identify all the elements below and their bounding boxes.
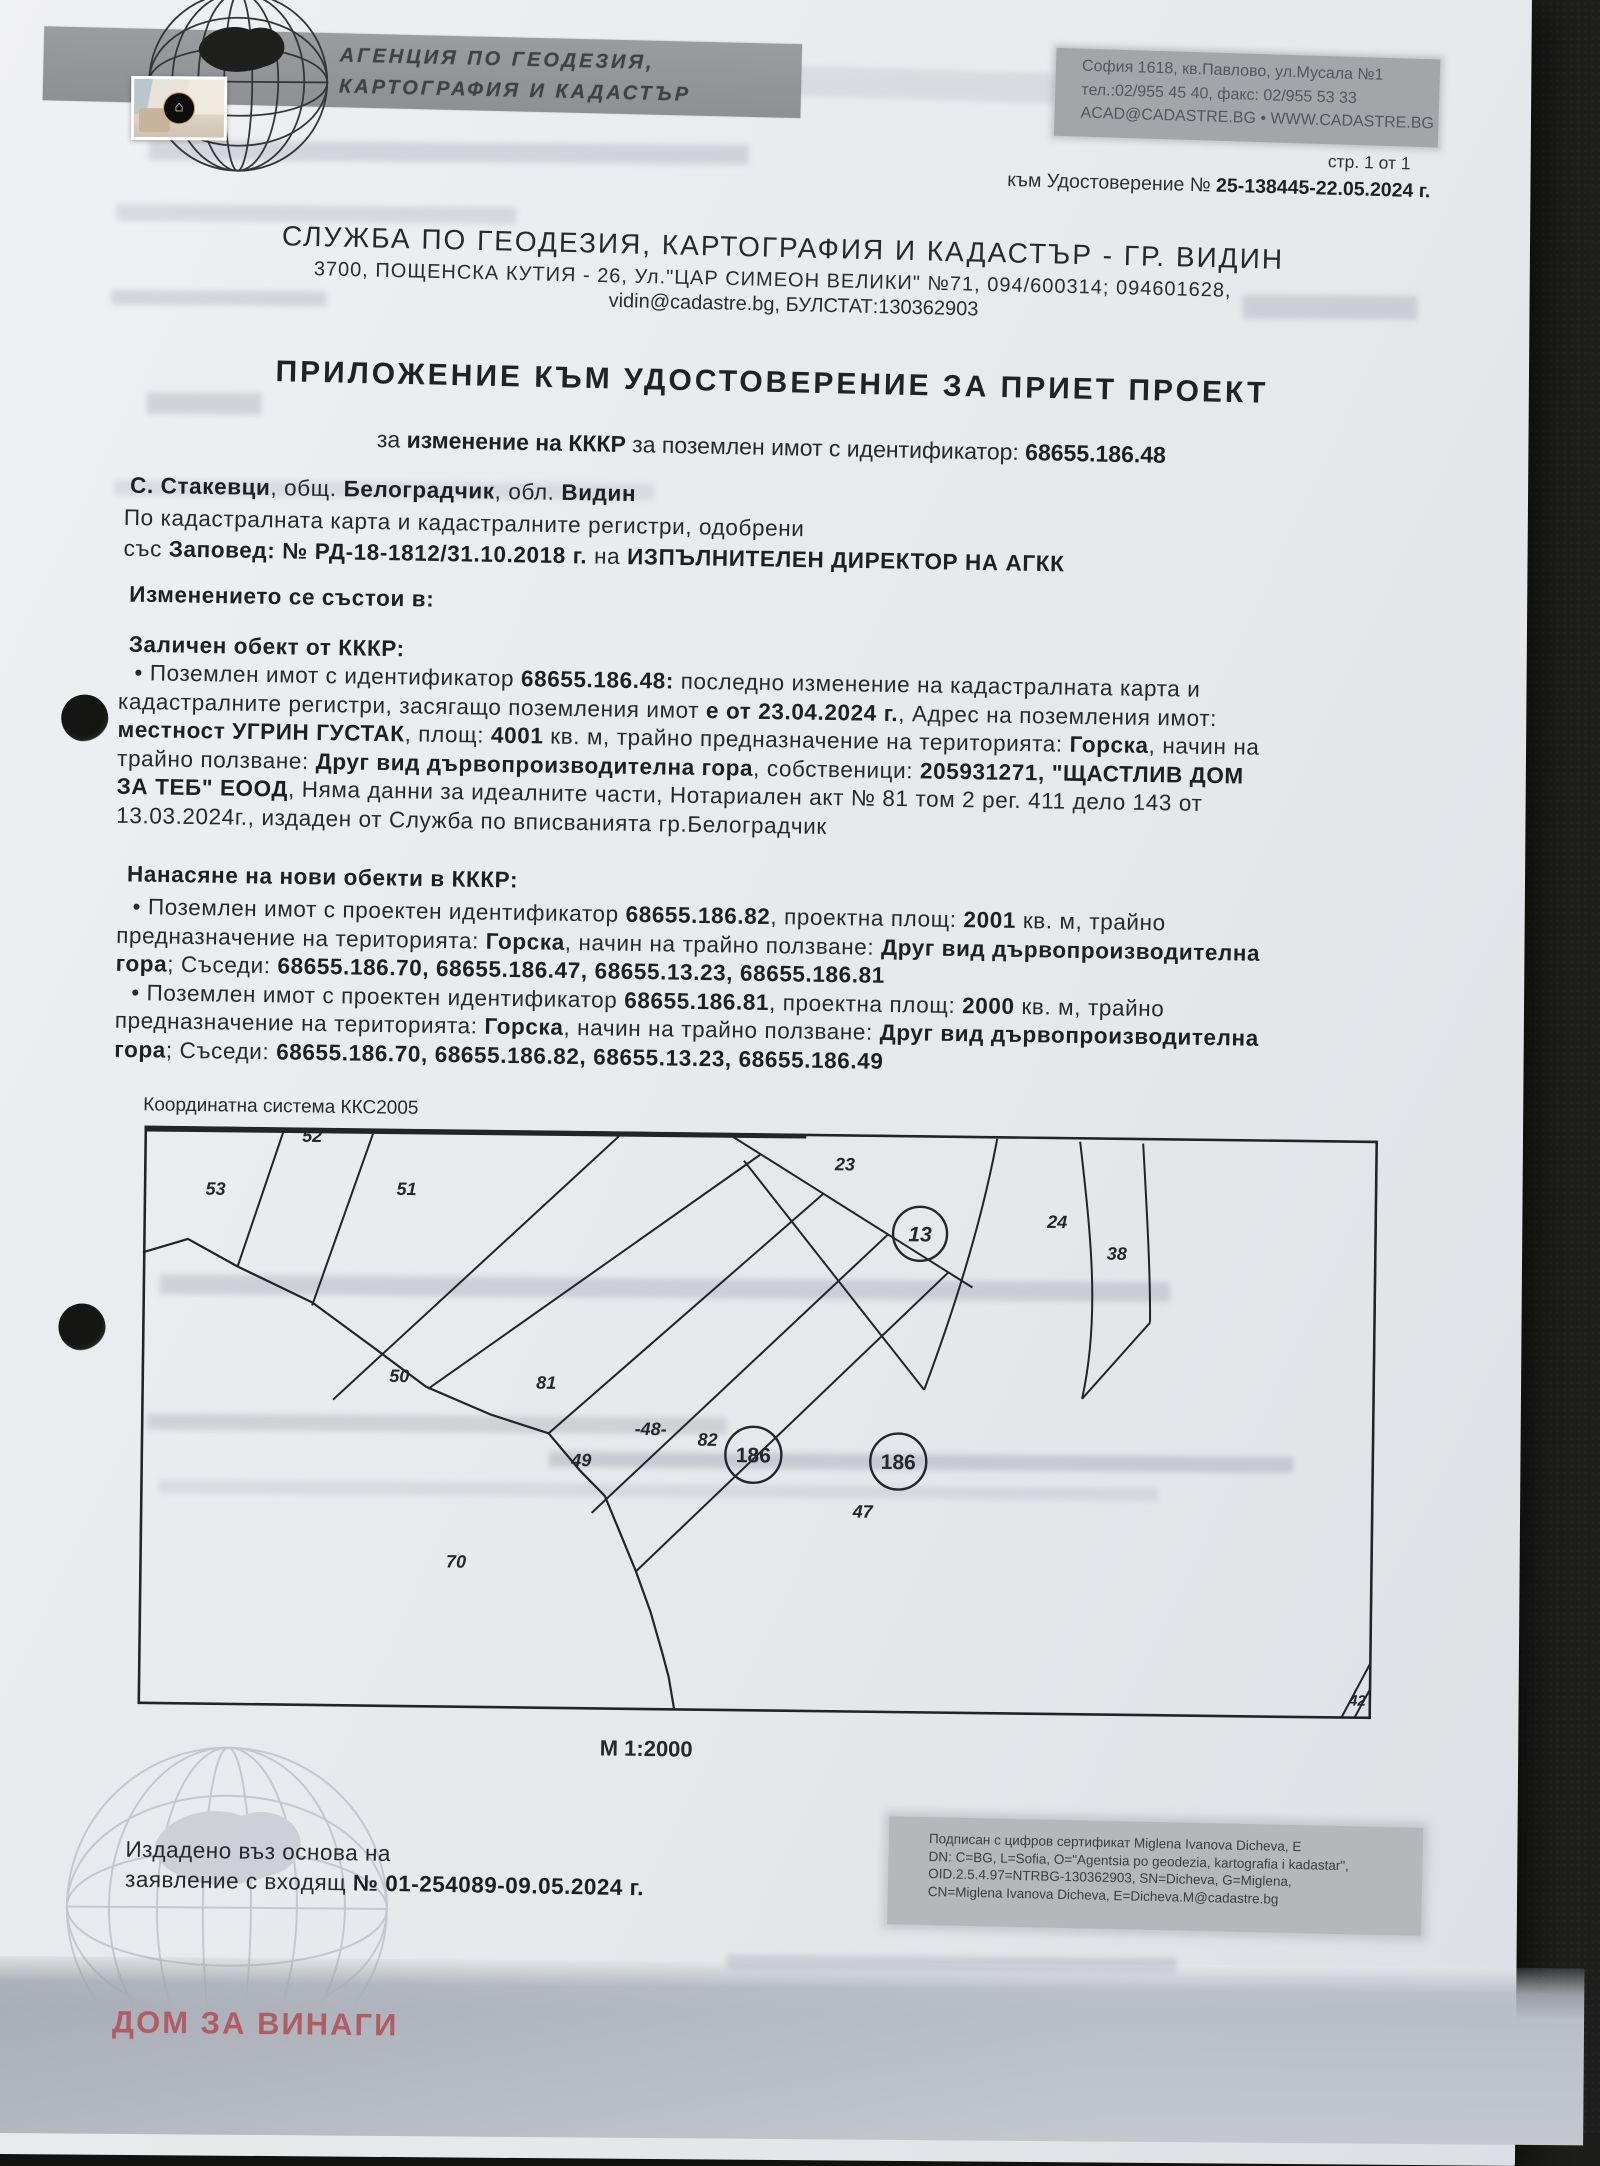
approval-line-2: със Заповед: № РД-18-1812/31.10.2018 г. … xyxy=(123,536,1064,578)
parcel-label: 23 xyxy=(834,1154,855,1174)
change-heading: Изменението се състои в: xyxy=(129,582,434,613)
location-line: С. Стакевци, общ. Белоградчик, обл. Види… xyxy=(130,473,637,507)
doc-subtitle: за изменение на КККР за поземлен имот с … xyxy=(6,419,1536,477)
parcel-label: -48- xyxy=(635,1419,667,1439)
parcel-label: 51 xyxy=(396,1179,416,1199)
parcel-label: 82 xyxy=(697,1430,717,1450)
ghost-bar xyxy=(147,392,262,415)
signature-block: Подписан с цифров сертификат Miglena Iva… xyxy=(887,1816,1423,1936)
house-logo-icon: ⌂ xyxy=(163,92,195,124)
parcel-label: 52 xyxy=(302,1126,322,1146)
parcel-label: 38 xyxy=(1107,1244,1127,1264)
bulgaria-map-shape xyxy=(199,27,285,73)
parcel-label: 50 xyxy=(389,1366,409,1386)
photo-thumbnail: ⌂ xyxy=(131,76,227,141)
deleted-paragraph: • Поземлен имот с идентификатор 68655.18… xyxy=(116,659,1261,848)
deleted-heading: Заличен обект от КККР: xyxy=(129,632,405,663)
parcel-label: 186 xyxy=(881,1451,916,1474)
photo-backdrop: АГЕНЦИЯ ПО ГЕОДЕЗИЯ, КАРТОГРАФИЯ И КАДАС… xyxy=(0,0,1600,2133)
agency-watermark: ДОМ ЗА ВИНАГИ xyxy=(112,2004,399,2043)
map-scale: М 1:2000 xyxy=(526,1734,766,1764)
issue-note: Издадено въз основа на заявление с входя… xyxy=(125,1835,645,1904)
page-number: стр. 1 от 1 xyxy=(1158,147,1410,175)
parcel-label: 186 xyxy=(736,1444,771,1467)
new-heading: Нанасяне на нови обекти в КККР: xyxy=(127,861,518,893)
new-paragraph: • Поземлен имот с проектен идентификатор… xyxy=(114,893,1261,1083)
parcel-label: 47 xyxy=(852,1502,874,1522)
parcel-label: 53 xyxy=(205,1179,225,1199)
map-crs-label: Координатна система ККС2005 xyxy=(143,1094,418,1120)
punch-hole xyxy=(58,1303,105,1350)
punch-hole xyxy=(61,694,108,741)
parcel-label: 70 xyxy=(446,1552,466,1572)
cadastral-map: 525351231324385081-48-8249186186477042 xyxy=(137,1125,1378,1720)
certificate-number: 25-138445-22.05.2024 г. xyxy=(1216,175,1431,203)
hq-contact-block: София 1618, кв.Павлово, ул.Мусала №1 тел… xyxy=(1054,48,1441,148)
document-page: АГЕНЦИЯ ПО ГЕОДЕЗИЯ, КАРТОГРАФИЯ И КАДАС… xyxy=(0,0,1532,2166)
parcel-label: 42 xyxy=(1348,1693,1367,1710)
agency-name: АГЕНЦИЯ ПО ГЕОДЕЗИЯ, КАРТОГРАФИЯ И КАДАС… xyxy=(339,40,860,114)
room-photo: ⌂ xyxy=(134,79,224,138)
parcel-label: 24 xyxy=(1046,1212,1067,1232)
parcel-label: 81 xyxy=(536,1373,556,1393)
parcel-label: 13 xyxy=(908,1223,932,1246)
parcel-label: 49 xyxy=(570,1450,591,1470)
bottom-shadow-strip xyxy=(0,1956,1584,2146)
